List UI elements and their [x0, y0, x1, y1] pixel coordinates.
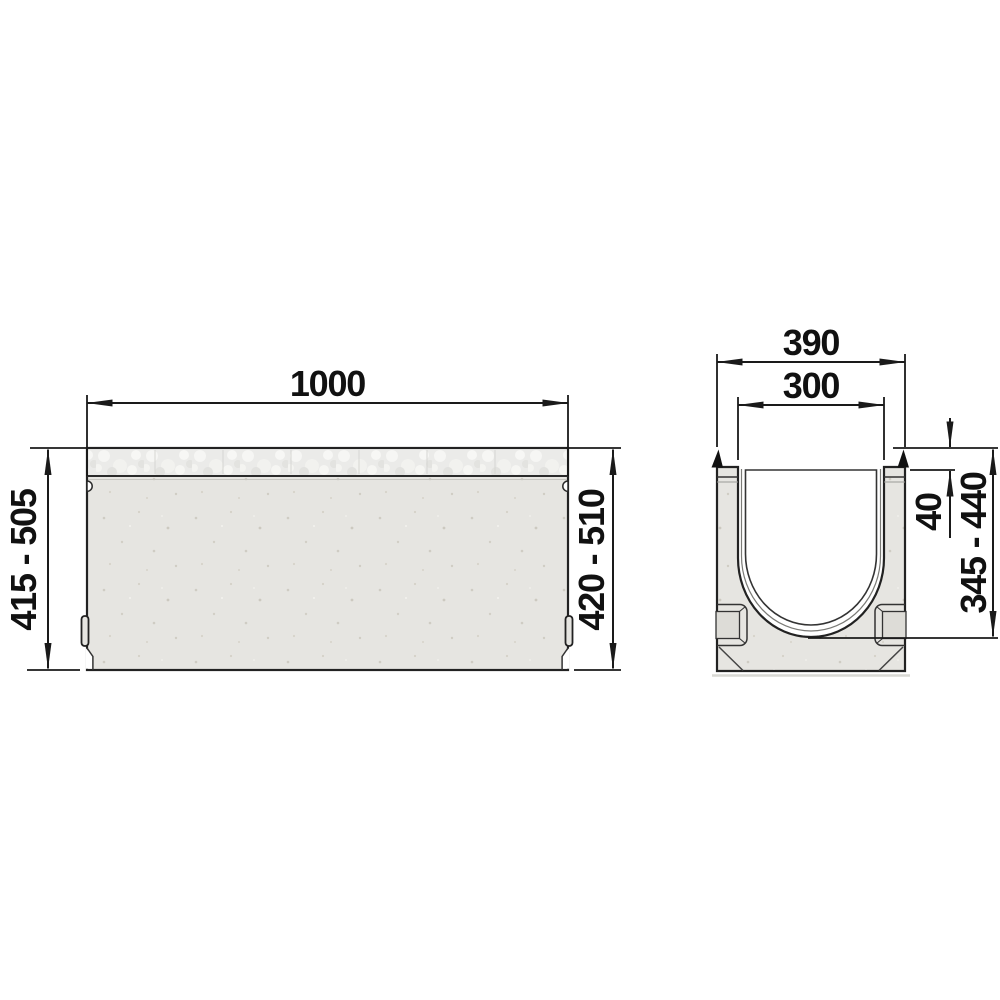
technical-drawing-page: 1000 415 - 505 420 - 510 390 300 40 [0, 0, 1000, 1000]
dim-inner-width: 300 [738, 365, 884, 460]
dim-label-inner-width: 300 [783, 365, 840, 406]
dim-label-length: 1000 [290, 363, 365, 404]
dim-height-left: 415 - 505 [3, 448, 88, 670]
dim-label-height-left: 415 - 505 [3, 488, 44, 630]
dim-label-outer-width: 390 [783, 322, 840, 363]
technical-drawing-canvas: 1000 415 - 505 420 - 510 390 300 40 [0, 0, 1000, 1000]
cross-section-drawing [712, 450, 911, 676]
side-view-left-notch [87, 481, 92, 491]
dim-label-height-right: 420 - 510 [571, 489, 612, 630]
right-edge-anchor [898, 450, 910, 468]
side-view-drawing [82, 448, 573, 670]
cross-section-channel-interior [746, 470, 877, 625]
dim-label-section-height: 345 - 440 [953, 472, 994, 613]
left-edge-anchor [712, 450, 724, 468]
side-view-left-joint [82, 616, 89, 646]
side-view-body [87, 448, 568, 670]
side-view-right-notch [563, 481, 568, 491]
dim-height-right: 420 - 510 [566, 448, 621, 670]
dim-label-edge-depth: 40 [908, 493, 949, 531]
